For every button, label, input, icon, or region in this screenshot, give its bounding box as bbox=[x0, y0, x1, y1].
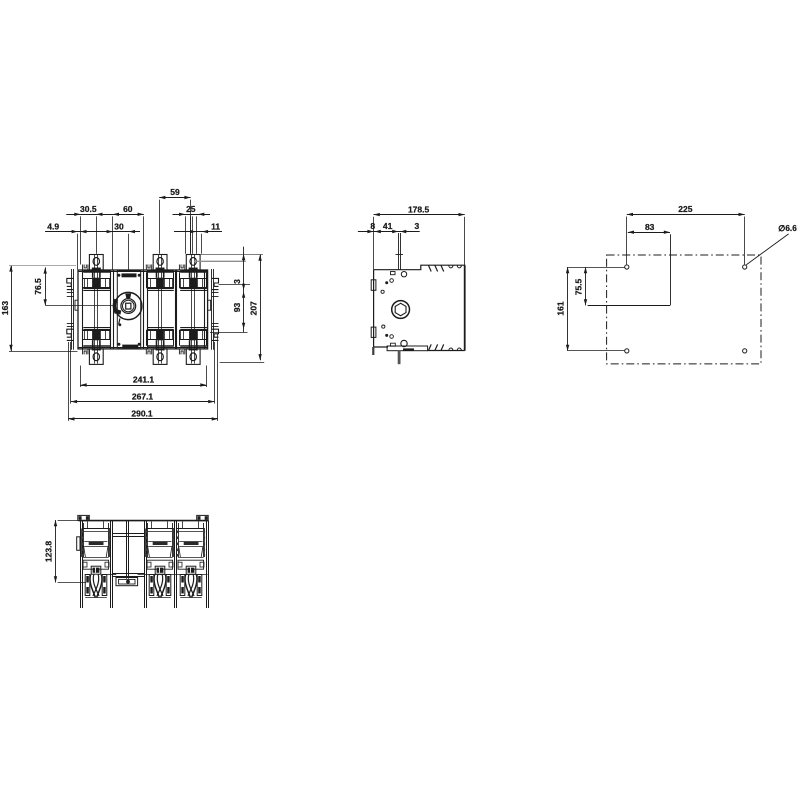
svg-text:76.5: 76.5 bbox=[33, 278, 43, 295]
svg-text:241.1: 241.1 bbox=[133, 375, 155, 385]
svg-text:11: 11 bbox=[211, 221, 220, 231]
svg-text:41: 41 bbox=[383, 221, 393, 231]
svg-text:59: 59 bbox=[170, 187, 180, 197]
svg-text:3: 3 bbox=[232, 279, 242, 284]
svg-text:30: 30 bbox=[114, 221, 124, 231]
svg-text:225: 225 bbox=[678, 204, 692, 214]
svg-text:161: 161 bbox=[555, 301, 565, 315]
svg-text:60: 60 bbox=[123, 204, 133, 214]
svg-text:83: 83 bbox=[645, 222, 655, 232]
svg-text:123.8: 123.8 bbox=[44, 541, 54, 563]
svg-text:3: 3 bbox=[415, 221, 420, 231]
svg-text:163: 163 bbox=[0, 301, 10, 315]
svg-text:207: 207 bbox=[249, 301, 259, 315]
svg-text:267.1: 267.1 bbox=[132, 391, 154, 401]
svg-text:178.5: 178.5 bbox=[408, 204, 430, 214]
svg-text:30.5: 30.5 bbox=[80, 204, 97, 214]
svg-text:290.1: 290.1 bbox=[131, 409, 153, 419]
svg-text:75.5: 75.5 bbox=[573, 278, 583, 295]
svg-text:4.9: 4.9 bbox=[47, 221, 59, 231]
svg-text:∅6.6: ∅6.6 bbox=[778, 224, 797, 233]
svg-text:93: 93 bbox=[232, 303, 242, 313]
svg-text:8: 8 bbox=[370, 221, 375, 231]
svg-text:25: 25 bbox=[186, 204, 196, 214]
